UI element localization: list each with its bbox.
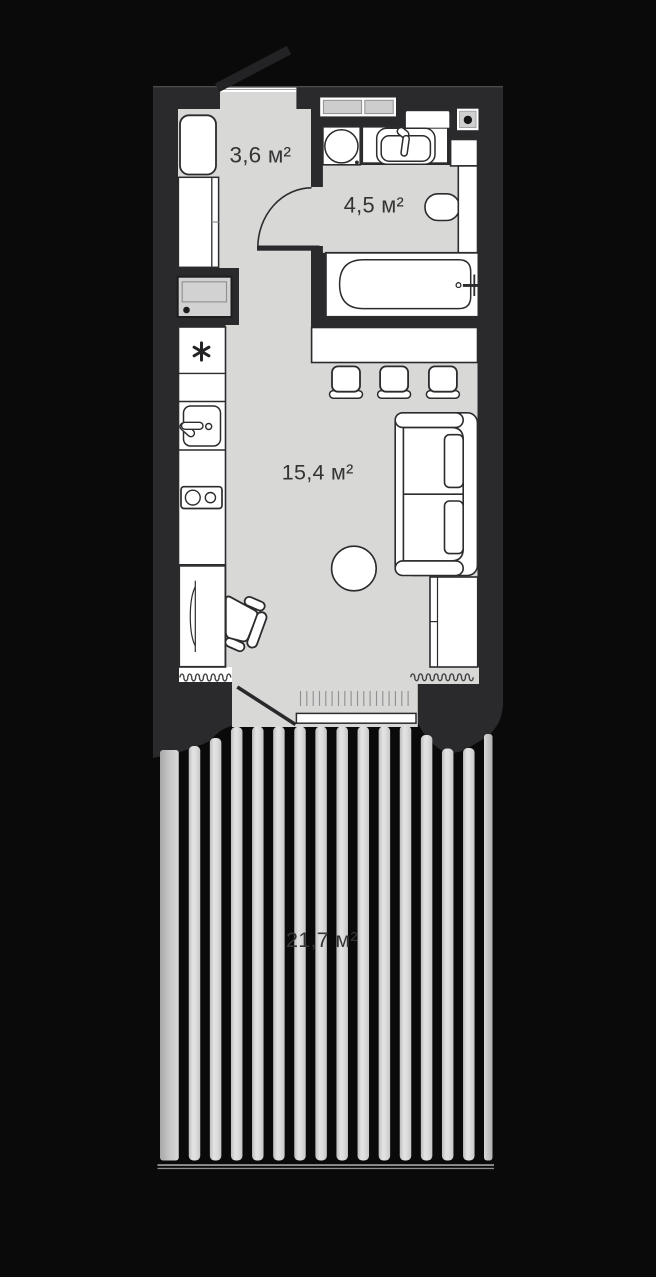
svg-text:4,5 м²: 4,5 м² <box>344 192 404 217</box>
svg-text:15,4 м²: 15,4 м² <box>282 461 354 485</box>
svg-text:3,6 м²: 3,6 м² <box>230 143 292 168</box>
svg-text:21,7 м²: 21,7 м² <box>286 928 358 952</box>
